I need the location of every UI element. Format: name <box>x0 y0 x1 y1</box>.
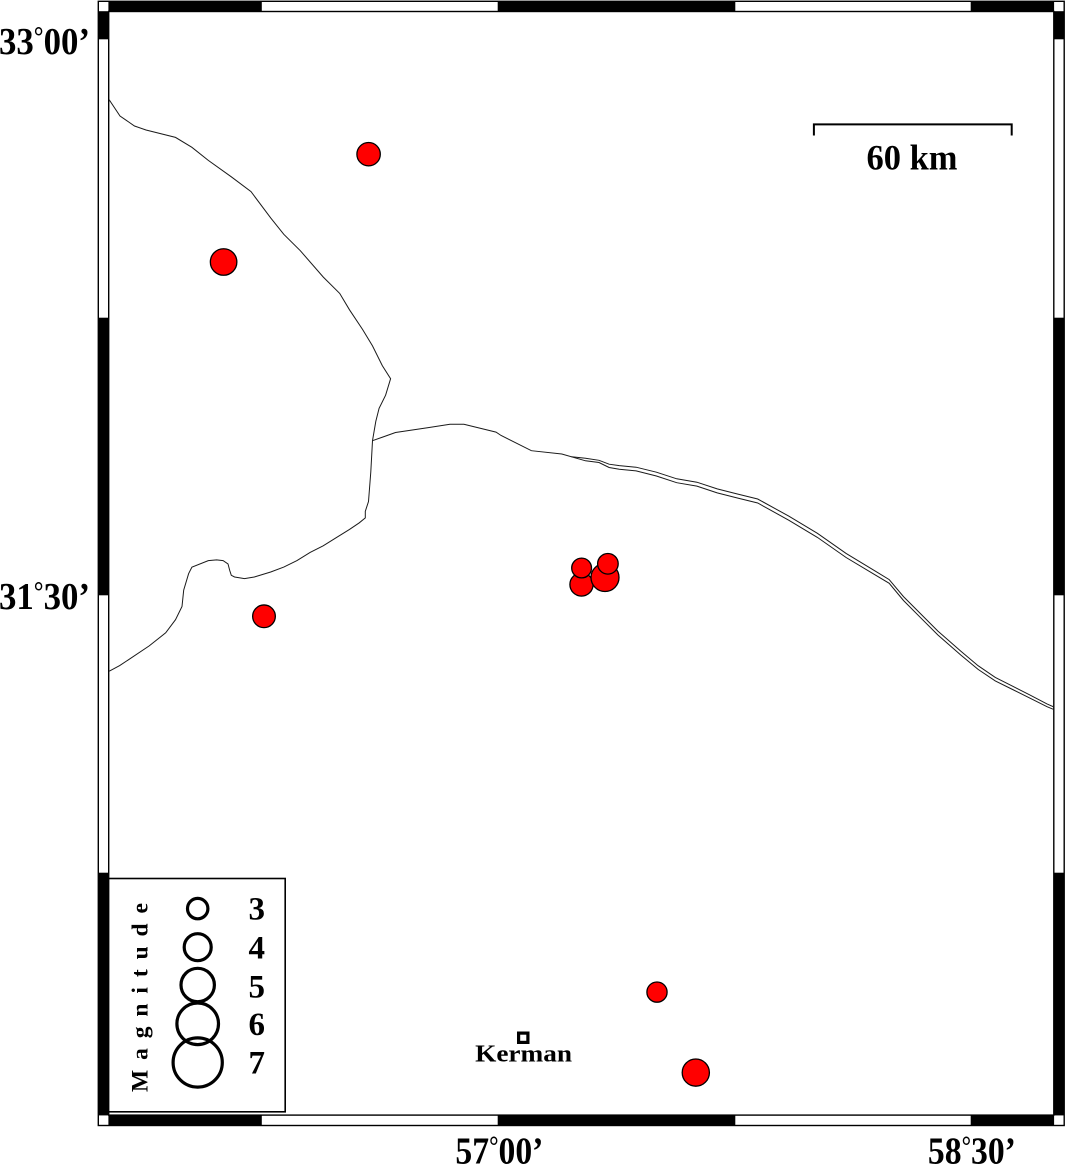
svg-text:3: 3 <box>248 891 265 927</box>
svg-text:57°00’: 57°00’ <box>455 1130 543 1164</box>
svg-text:33°00’: 33°00’ <box>0 21 90 63</box>
svg-text:31°30’: 31°30’ <box>0 576 90 618</box>
svg-text:58°30’: 58°30’ <box>928 1130 1016 1164</box>
svg-text:5: 5 <box>248 969 265 1005</box>
svg-text:6: 6 <box>248 1007 265 1043</box>
svg-text:7: 7 <box>248 1045 265 1081</box>
svg-text:60 km: 60 km <box>867 138 958 178</box>
svg-text:Kerman: Kerman <box>475 1041 572 1068</box>
svg-text:4: 4 <box>248 931 265 967</box>
